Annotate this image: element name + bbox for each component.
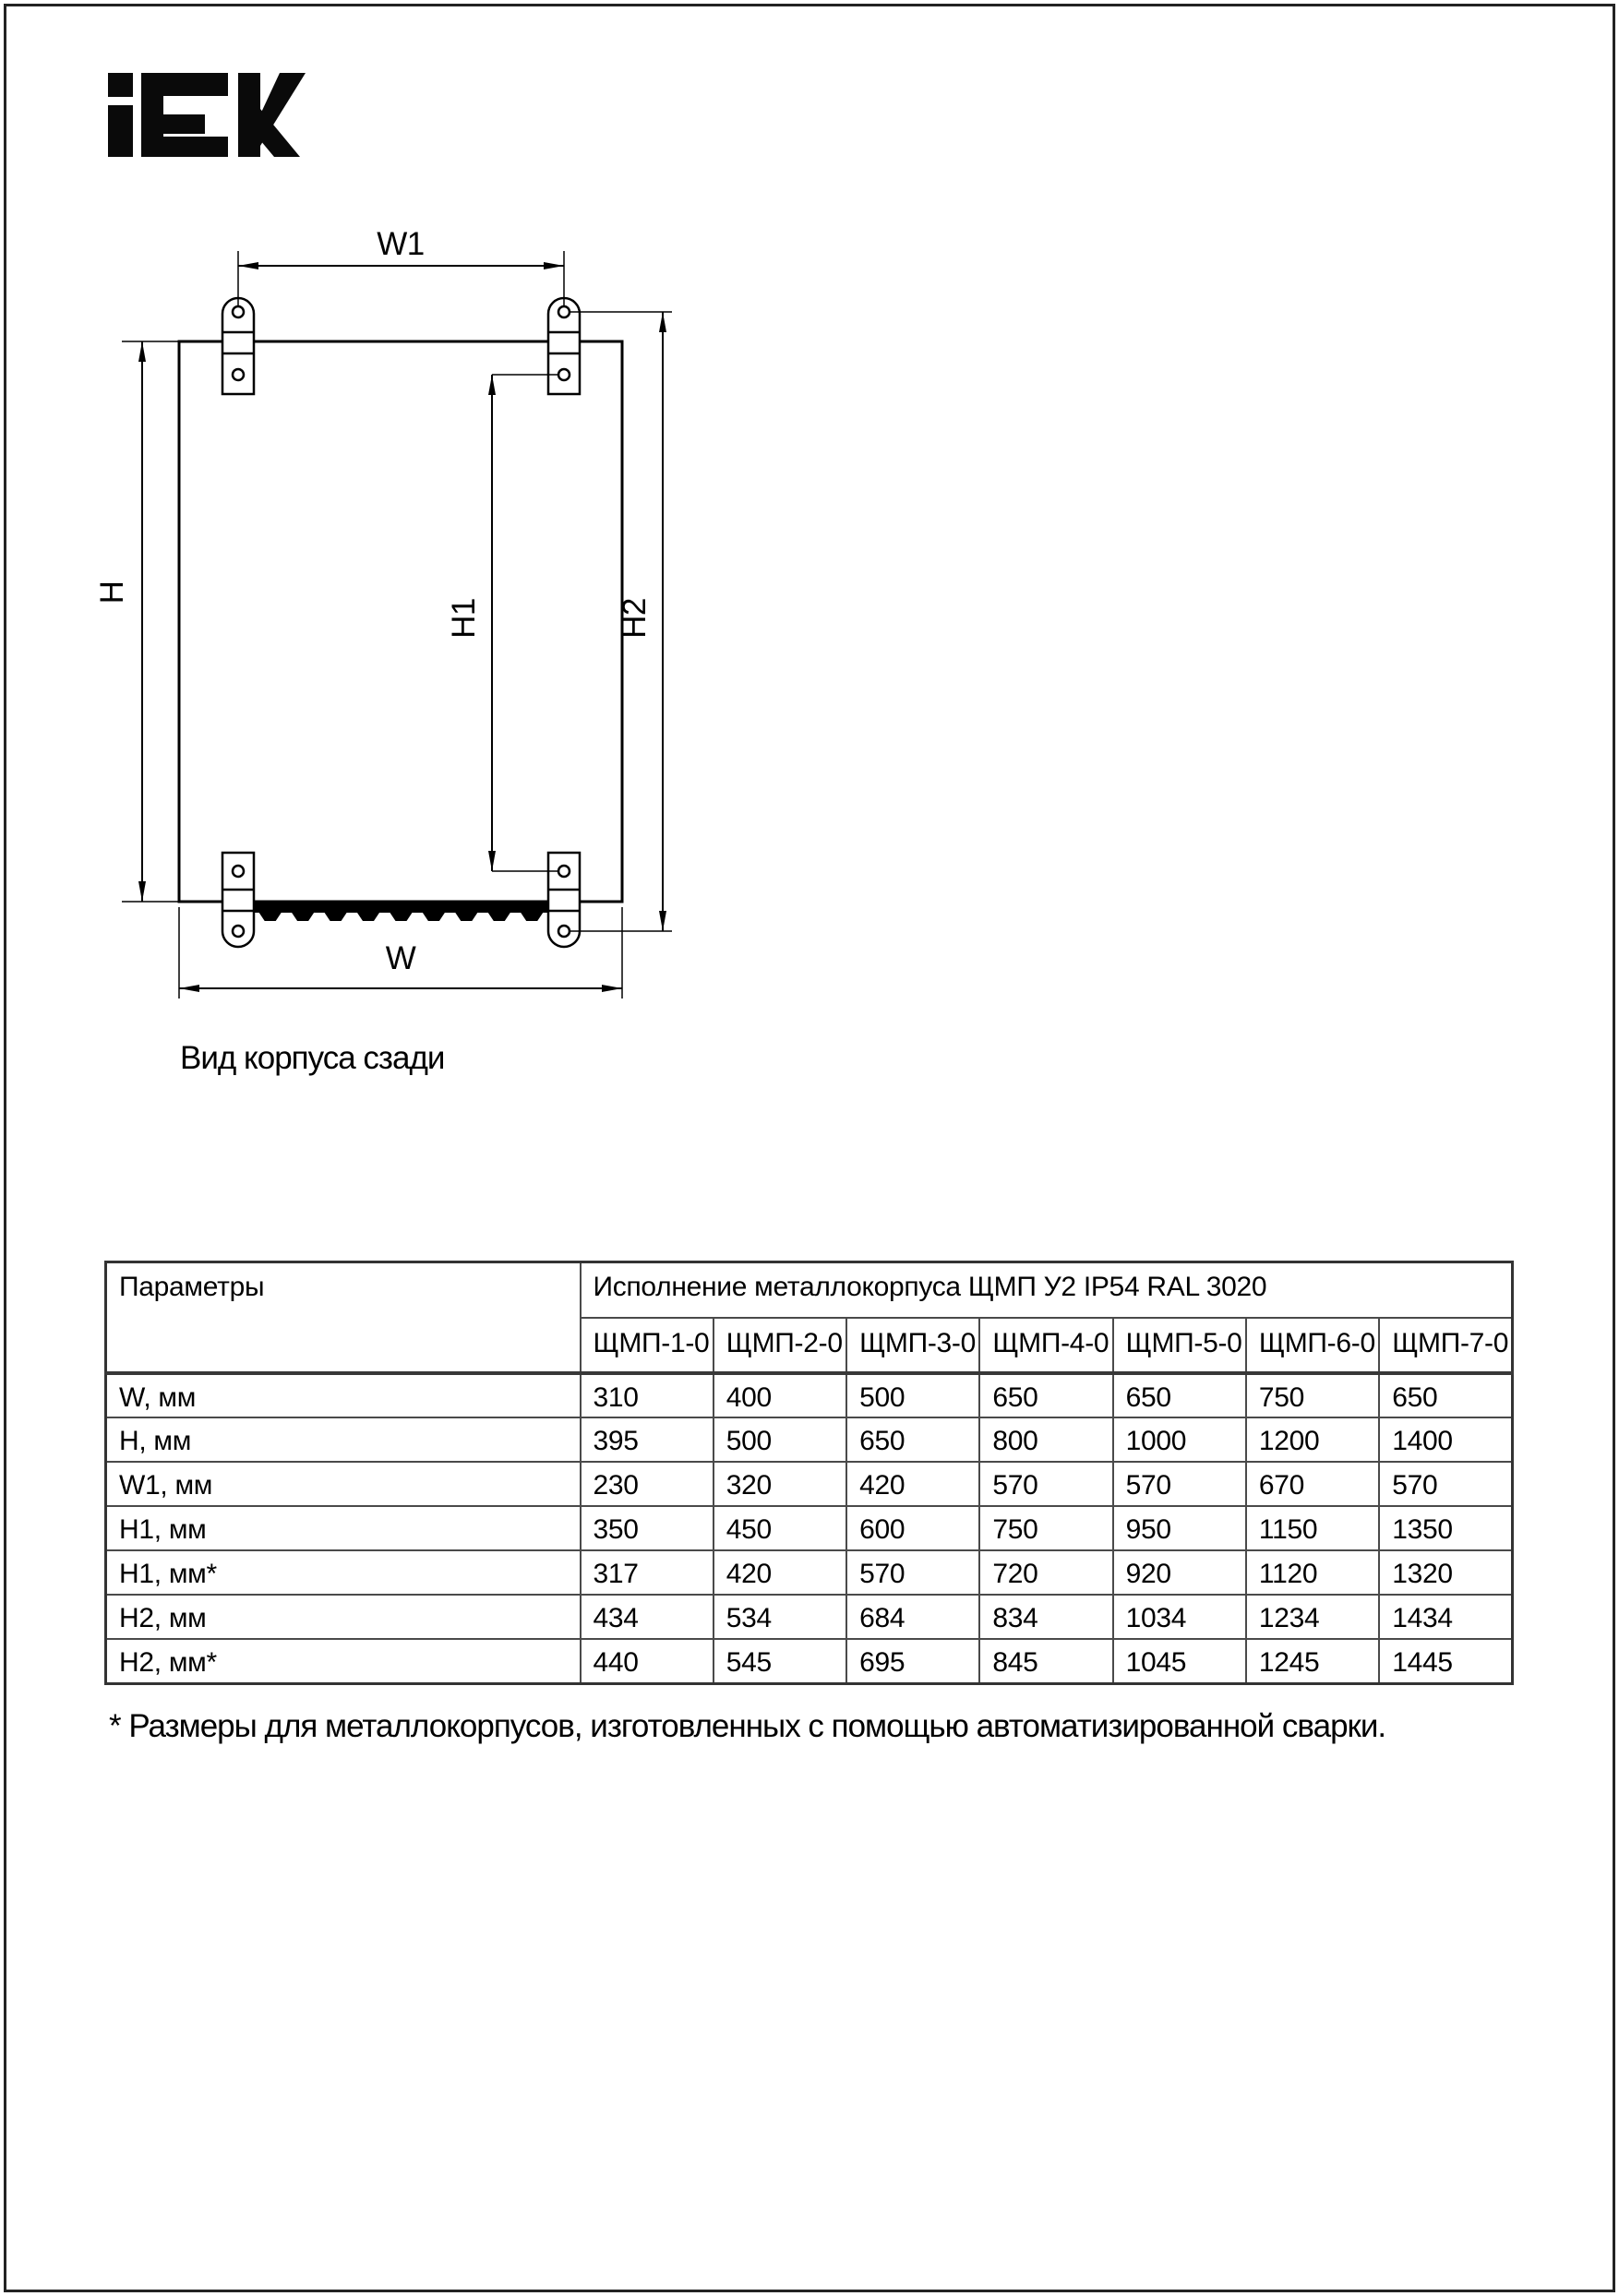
value-cell: 500 [846, 1373, 979, 1417]
logo-i-dot [108, 73, 133, 97]
table-row: H2, мм434534684834103412341434 [106, 1595, 1513, 1639]
table-row: H1, мм35045060075095011501350 [106, 1506, 1513, 1550]
value-cell: 395 [581, 1417, 714, 1462]
logo-e-mid-bar [163, 114, 205, 134]
dimension-label-h2: H2 [617, 598, 653, 639]
logo-k-stem [238, 73, 260, 157]
table-row: H, мм395500650800100012001400 [106, 1417, 1513, 1462]
value-cell: 545 [714, 1639, 846, 1683]
technical-drawing: W1 H H1 H2 W Вид корпуса сзади [74, 231, 720, 1089]
value-cell: 1045 [1113, 1639, 1246, 1683]
row-label-cell: H2, мм* [106, 1639, 581, 1683]
mounting-bracket-bottom-left [222, 853, 254, 947]
value-cell: 440 [581, 1639, 714, 1683]
value-cell: 310 [581, 1373, 714, 1417]
value-cell: 650 [1113, 1373, 1246, 1417]
value-cell: 920 [1113, 1550, 1246, 1595]
table-row: W1, мм230320420570570670570 [106, 1462, 1513, 1506]
model-header-cell: ЩМП-1-0 [581, 1318, 714, 1373]
value-cell: 695 [846, 1639, 979, 1683]
table-row: H2, мм*440545695845104512451445 [106, 1639, 1513, 1683]
bracket-hole [233, 926, 244, 937]
row-label-cell: W, мм [106, 1373, 581, 1417]
dimension-label-w1: W1 [377, 231, 425, 262]
value-cell: 1200 [1246, 1417, 1379, 1462]
value-cell: 650 [979, 1373, 1112, 1417]
value-cell: 320 [714, 1462, 846, 1506]
value-cell: 570 [1113, 1462, 1246, 1506]
bracket-hole [558, 306, 570, 317]
value-cell: 420 [714, 1550, 846, 1595]
value-cell: 1234 [1246, 1595, 1379, 1639]
param-header-cell: Параметры [106, 1262, 581, 1374]
row-label-cell: H, мм [106, 1417, 581, 1462]
value-cell: 350 [581, 1506, 714, 1550]
dimensions-table: Параметры Исполнение металлокорпуса ЩМП … [104, 1261, 1514, 1685]
value-cell: 230 [581, 1462, 714, 1506]
value-cell: 650 [1379, 1373, 1512, 1417]
model-header-cell: ЩМП-3-0 [846, 1318, 979, 1373]
value-cell: 600 [846, 1506, 979, 1550]
value-cell: 670 [1246, 1462, 1379, 1506]
dimension-label-h: H [94, 581, 130, 604]
value-cell: 434 [581, 1595, 714, 1639]
logo-i-body [108, 105, 133, 157]
dimension-label-h1: H1 [446, 598, 482, 639]
bracket-hole [558, 369, 570, 380]
bracket-hole [233, 369, 244, 380]
model-header-cell: ЩМП-6-0 [1246, 1318, 1379, 1373]
bracket-hole [558, 866, 570, 877]
mounting-bracket-bottom-right [548, 853, 580, 947]
logo-e-bottom-bar [141, 137, 228, 157]
logo-e-top-bar [141, 73, 228, 96]
value-cell: 1434 [1379, 1595, 1512, 1639]
enclosure-outline [179, 341, 622, 902]
value-cell: 950 [1113, 1506, 1246, 1550]
value-cell: 1245 [1246, 1639, 1379, 1683]
row-label-cell: H1, мм* [106, 1550, 581, 1595]
row-label-cell: H1, мм [106, 1506, 581, 1550]
value-cell: 570 [979, 1462, 1112, 1506]
value-cell: 650 [846, 1417, 979, 1462]
model-header-cell: ЩМП-2-0 [714, 1318, 846, 1373]
dimension-label-w: W [386, 940, 416, 976]
value-cell: 1150 [1246, 1506, 1379, 1550]
value-cell: 317 [581, 1550, 714, 1595]
value-cell: 750 [1246, 1373, 1379, 1417]
value-cell: 750 [979, 1506, 1112, 1550]
value-cell: 1400 [1379, 1417, 1512, 1462]
value-cell: 1034 [1113, 1595, 1246, 1639]
value-cell: 534 [714, 1595, 846, 1639]
footnote: * Размеры для металлокорпусов, изготовле… [109, 1708, 1385, 1745]
bracket-hole [233, 866, 244, 877]
serrated-strip [254, 902, 548, 921]
mounting-bracket-top-left [222, 298, 254, 394]
value-cell: 834 [979, 1595, 1112, 1639]
row-label-cell: H2, мм [106, 1595, 581, 1639]
value-cell: 1350 [1379, 1506, 1512, 1550]
table-row: W, мм310400500650650750650 [106, 1373, 1513, 1417]
model-header-cell: ЩМП-4-0 [979, 1318, 1112, 1373]
value-cell: 684 [846, 1595, 979, 1639]
drawing-caption: Вид корпуса сзади [180, 1040, 444, 1076]
value-cell: 800 [979, 1417, 1112, 1462]
value-cell: 420 [846, 1462, 979, 1506]
row-label-cell: W1, мм [106, 1462, 581, 1506]
table-row: H1, мм*31742057072092011201320 [106, 1550, 1513, 1595]
value-cell: 720 [979, 1550, 1112, 1595]
bracket-hole [558, 926, 570, 937]
value-cell: 1445 [1379, 1639, 1512, 1683]
value-cell: 570 [1379, 1462, 1512, 1506]
model-header-cell: ЩМП-5-0 [1113, 1318, 1246, 1373]
group-header-cell: Исполнение металлокорпуса ЩМП У2 IP54 RA… [581, 1262, 1513, 1319]
iek-logo [108, 73, 320, 157]
bracket-hole [233, 306, 244, 317]
value-cell: 500 [714, 1417, 846, 1462]
value-cell: 570 [846, 1550, 979, 1595]
value-cell: 1000 [1113, 1417, 1246, 1462]
model-header-cell: ЩМП-7-0 [1379, 1318, 1512, 1373]
value-cell: 845 [979, 1639, 1112, 1683]
value-cell: 1320 [1379, 1550, 1512, 1595]
value-cell: 400 [714, 1373, 846, 1417]
value-cell: 450 [714, 1506, 846, 1550]
dimension-h [122, 341, 179, 902]
value-cell: 1120 [1246, 1550, 1379, 1595]
